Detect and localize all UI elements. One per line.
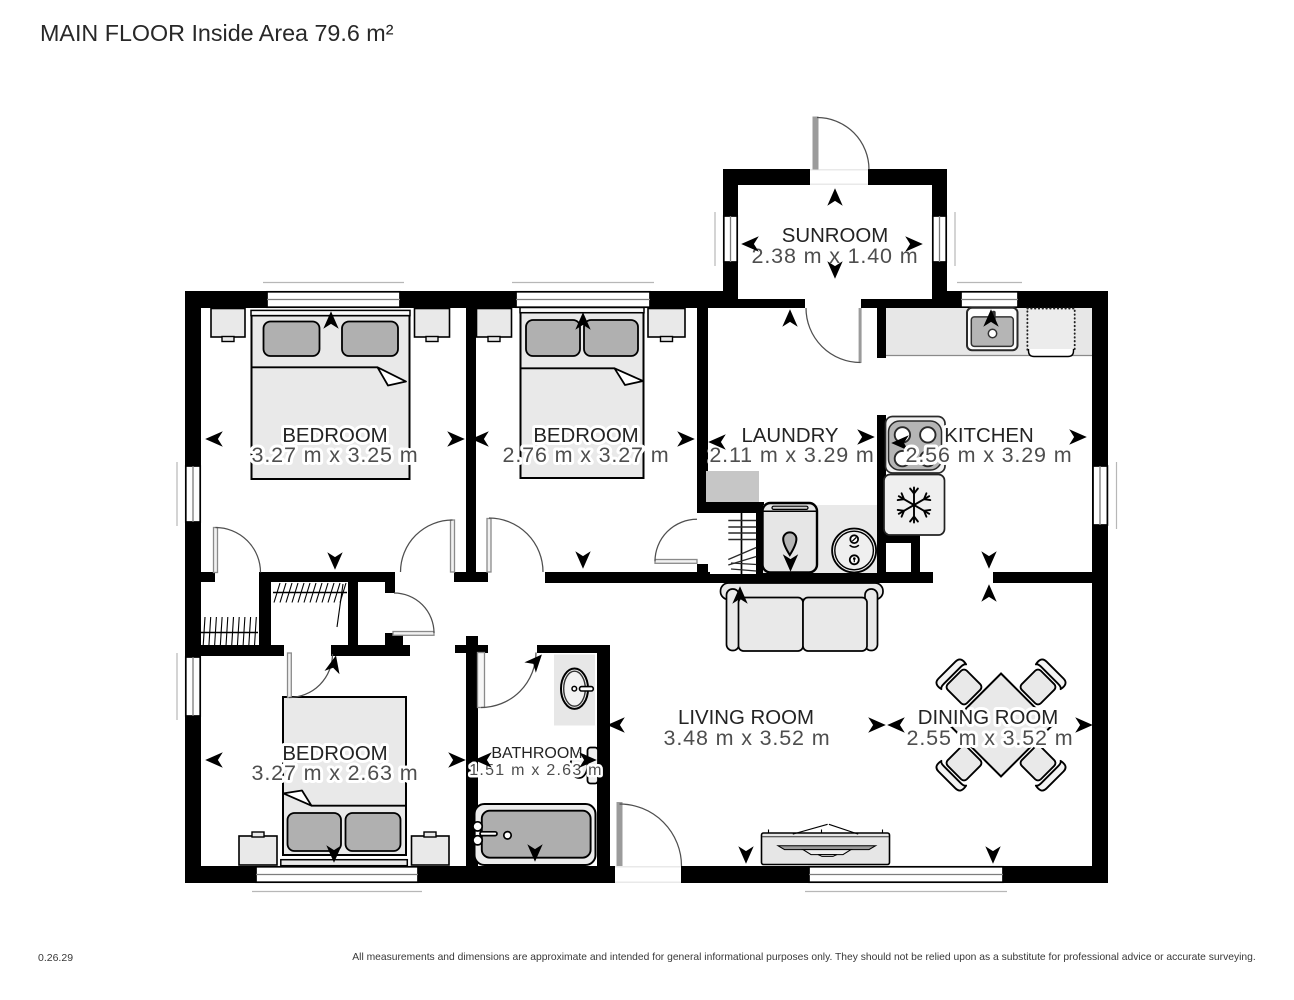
svg-text:3.27 m x 3.25 m: 3.27 m x 3.25 m <box>252 443 419 467</box>
svg-text:2.38 m x 1.40 m: 2.38 m x 1.40 m <box>752 244 919 268</box>
svg-text:All measurements and dimension: All measurements and dimensions are appr… <box>352 952 1255 963</box>
svg-text:BATHROOM: BATHROOM <box>491 745 582 762</box>
svg-text:2.76 m x 3.27 m: 2.76 m x 3.27 m <box>503 443 670 467</box>
svg-text:3.48 m x 3.52 m: 3.48 m x 3.52 m <box>664 726 831 750</box>
svg-text:MAIN FLOOR Inside Area 79.6 m²: MAIN FLOOR Inside Area 79.6 m² <box>40 20 394 46</box>
svg-text:3.27 m x 2.63 m: 3.27 m x 2.63 m <box>252 761 419 785</box>
svg-text:2.11 m x 3.29 m: 2.11 m x 3.29 m <box>709 443 874 467</box>
svg-text:2.56 m x 3.29 m: 2.56 m x 3.29 m <box>906 443 1073 467</box>
svg-text:2.55 m x 3.52 m: 2.55 m x 3.52 m <box>907 726 1074 750</box>
svg-text:0.26.29: 0.26.29 <box>38 952 73 964</box>
